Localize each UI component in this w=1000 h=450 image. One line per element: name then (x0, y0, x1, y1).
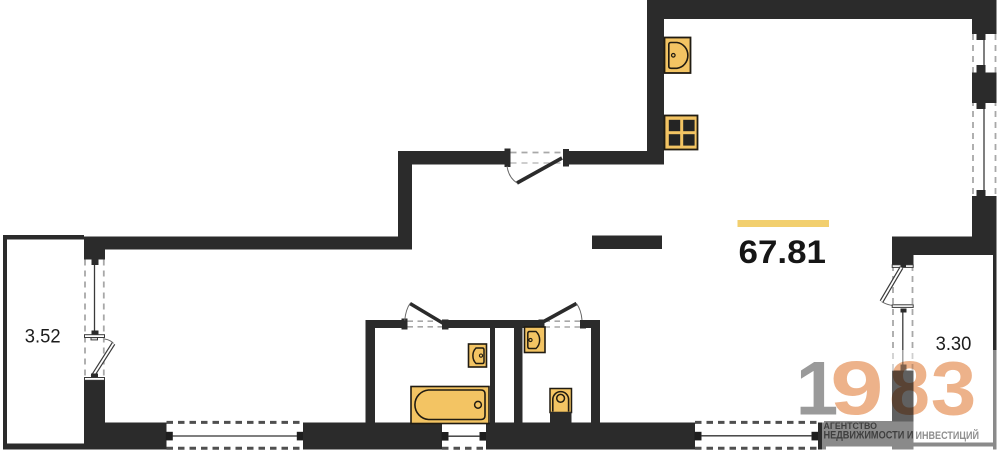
svg-text:3.52: 3.52 (25, 326, 61, 347)
svg-text:ИНВЕСТИЦИЙ: ИНВЕСТИЦИЙ (916, 429, 980, 442)
svg-text:67.81: 67.81 (739, 234, 827, 270)
svg-text:9: 9 (830, 346, 883, 431)
svg-text:НЕДВИЖИМОСТИ И: НЕДВИЖИМОСТИ И (824, 430, 914, 442)
